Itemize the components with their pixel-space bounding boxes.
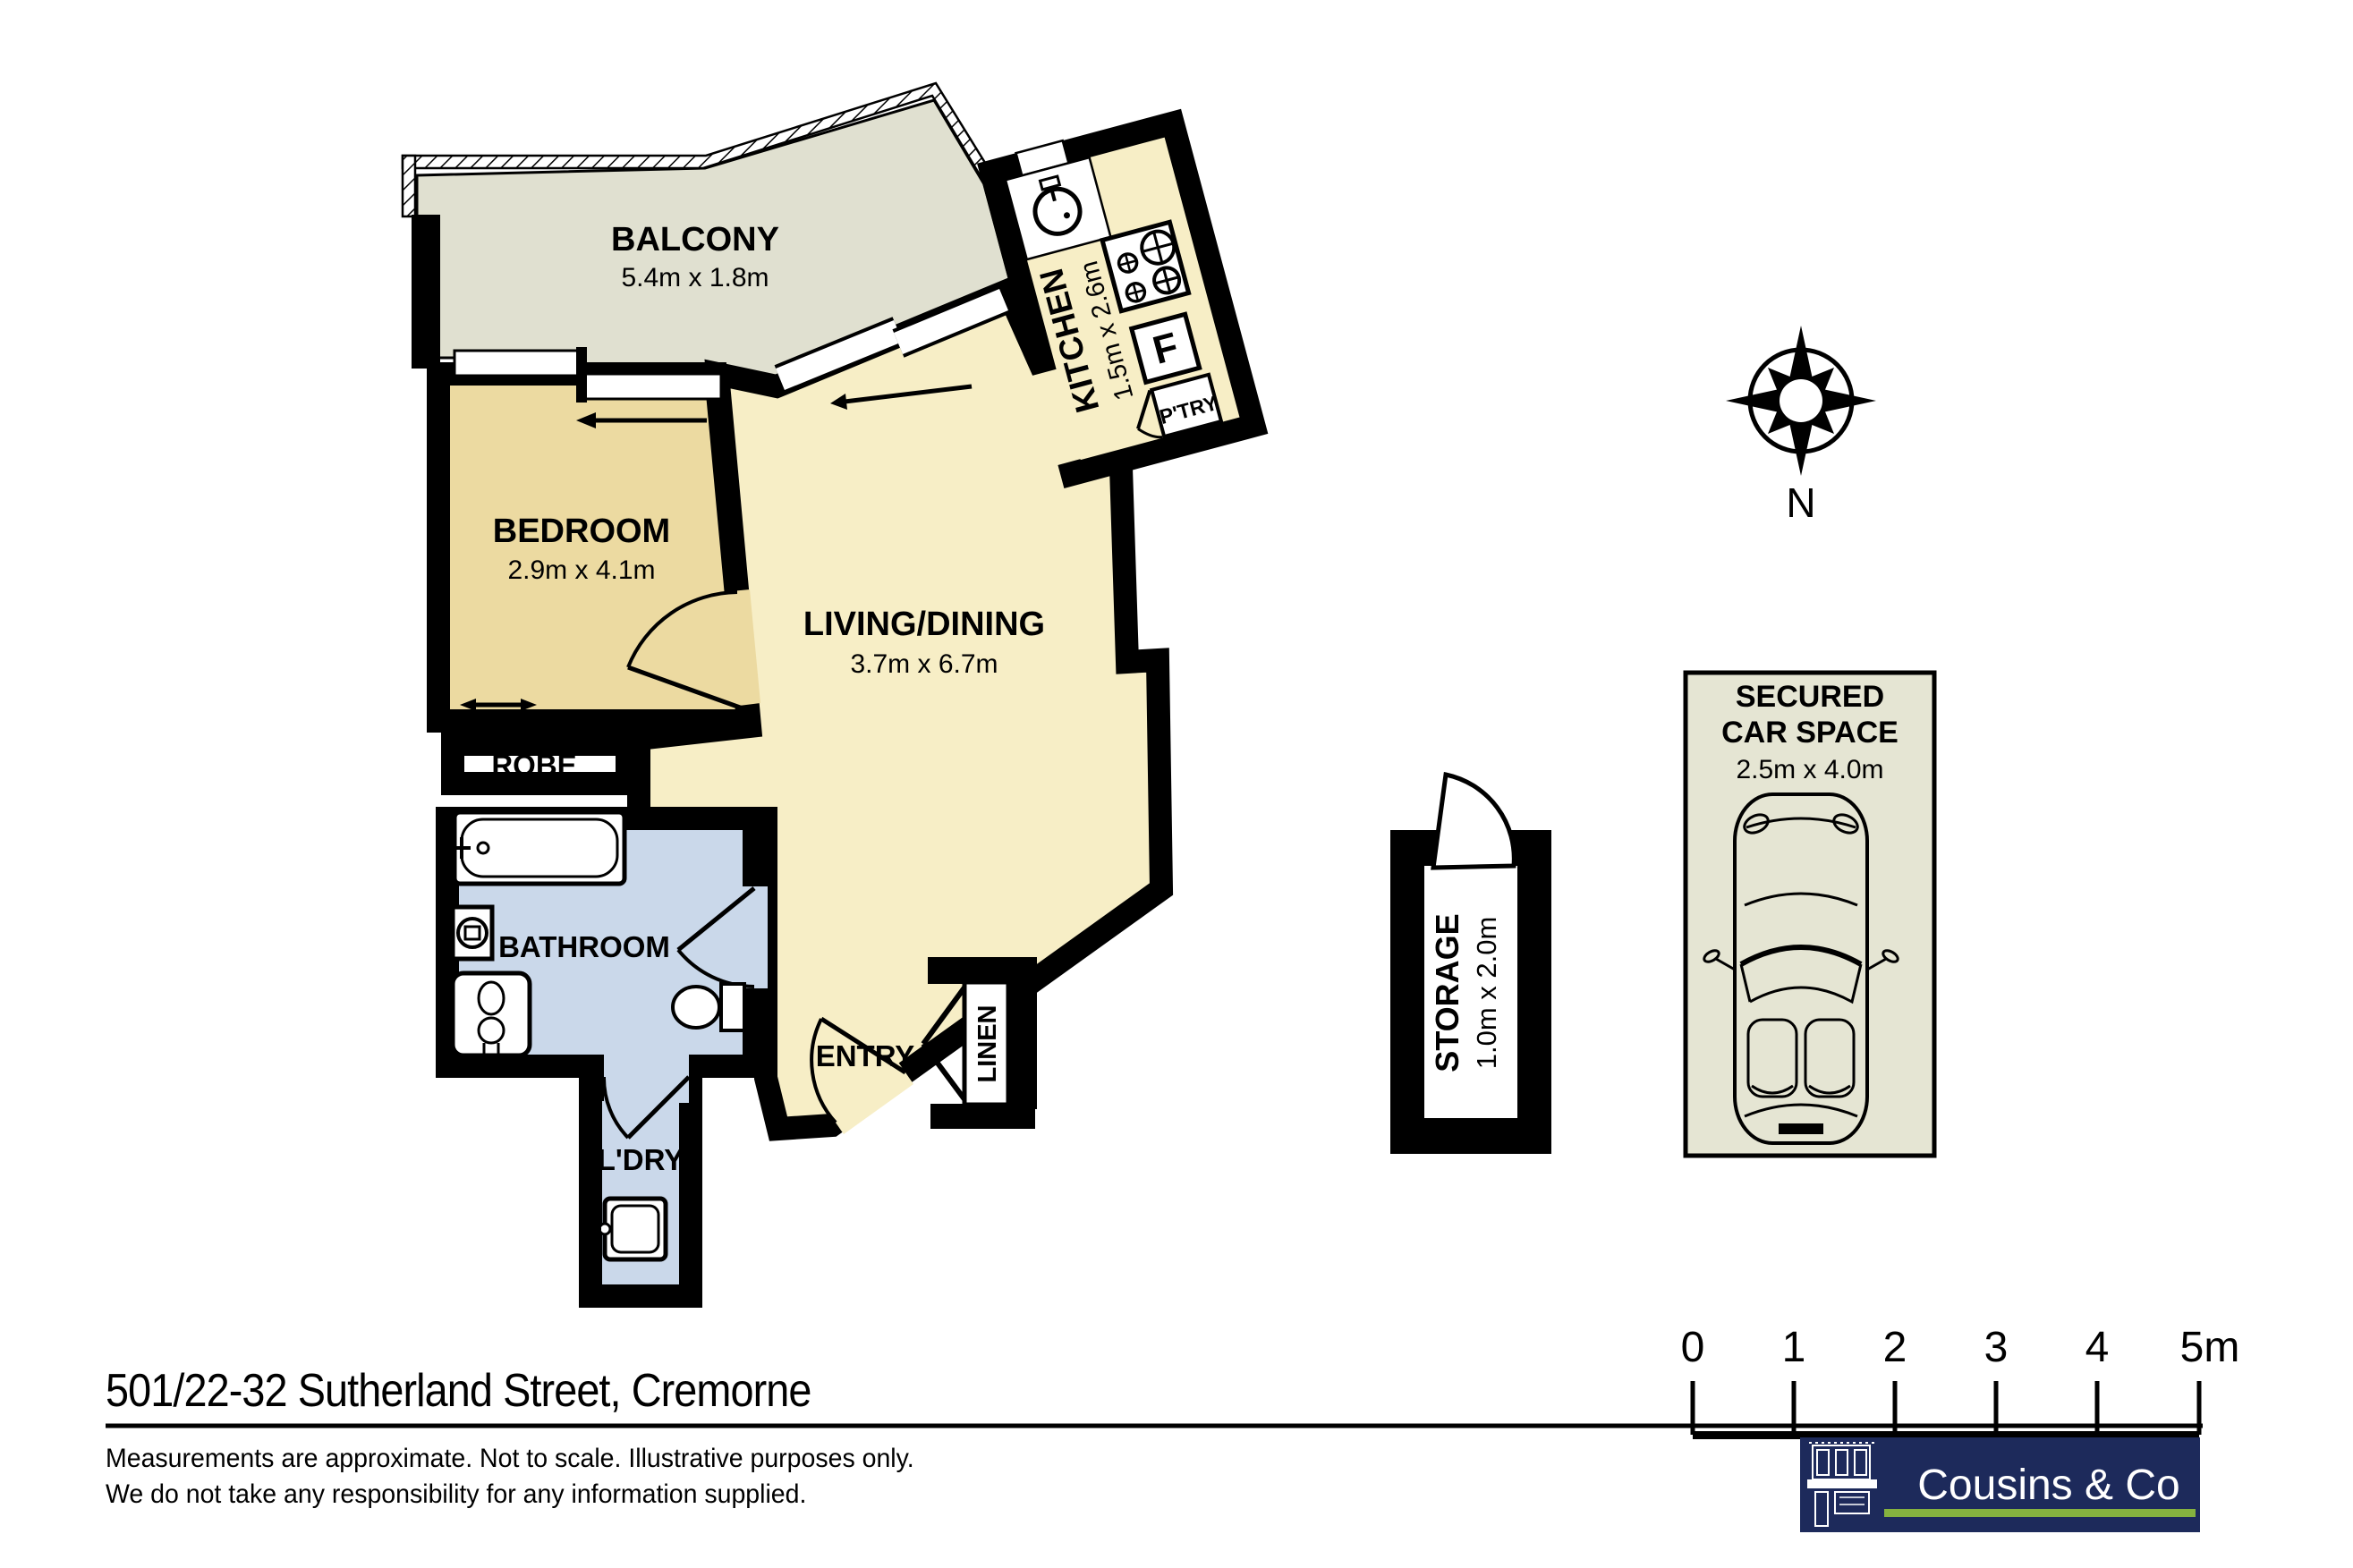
storage-unit: STORAGE 1.0m x 2.0m bbox=[1390, 775, 1551, 1154]
pedestal-basin bbox=[453, 973, 530, 1055]
brand-name: Cousins & Co bbox=[1917, 1462, 2179, 1509]
disclaimer-line1: Measurements are approximate. Not to sca… bbox=[106, 1444, 914, 1473]
bathtub bbox=[454, 812, 624, 884]
storage-label: STORAGE bbox=[1429, 913, 1465, 1072]
laundry-floor bbox=[590, 1089, 691, 1296]
entry-label: ENTRY bbox=[816, 1039, 915, 1072]
linen-label: LINEN bbox=[973, 1005, 1002, 1083]
wall-segment bbox=[412, 215, 440, 369]
balcony-railing-end bbox=[403, 156, 415, 216]
bedroom-dims: 2.9m x 4.1m bbox=[507, 555, 655, 585]
brand-logo: Cousins & Co bbox=[1800, 1437, 2200, 1532]
car-space-dims: 2.5m x 4.0m bbox=[1736, 755, 1883, 784]
toilet bbox=[673, 984, 744, 1030]
scale-tick-5: 5m bbox=[2180, 1324, 2240, 1371]
living-dining-dims: 3.7m x 6.7m bbox=[850, 649, 998, 679]
disclaimer-line2: We do not take any responsibility for an… bbox=[106, 1479, 806, 1509]
bedroom-label: BEDROOM bbox=[493, 513, 670, 550]
car-space-label-line1: SECURED bbox=[1736, 680, 1884, 714]
scale-tick-2: 2 bbox=[1883, 1324, 1907, 1371]
balcony-label: BALCONY bbox=[611, 221, 779, 259]
floorplan-page: F P'TRY KITCHEN 1.5m x 2.6m bbox=[0, 0, 2353, 1568]
wall-basin bbox=[447, 907, 492, 959]
scale-tick-0: 0 bbox=[1681, 1324, 1705, 1371]
bathroom-label: BATHROOM bbox=[498, 930, 670, 963]
floor-plan-svg: F P'TRY KITCHEN 1.5m x 2.6m bbox=[0, 0, 2353, 1568]
compass-north-label: N bbox=[1786, 479, 1815, 526]
brand-underline bbox=[1884, 1509, 2196, 1517]
laundry-tub bbox=[594, 1199, 666, 1259]
car-space: SECURED CAR SPACE 2.5m x 4.0m bbox=[1686, 673, 1934, 1156]
storage-dims: 1.0m x 2.0m bbox=[1471, 917, 1502, 1070]
scale-tick-3: 3 bbox=[1984, 1324, 2009, 1371]
scale-tick-4: 4 bbox=[2085, 1324, 2110, 1371]
car-space-label-line2: CAR SPACE bbox=[1721, 716, 1899, 750]
living-dining-label: LIVING/DINING bbox=[803, 606, 1045, 643]
balcony-dims: 5.4m x 1.8m bbox=[621, 263, 769, 292]
scale-tick-1: 1 bbox=[1782, 1324, 1806, 1371]
page-title: 501/22-32 Sutherland Street, Cremorne bbox=[106, 1365, 811, 1417]
fridge: F bbox=[1132, 314, 1200, 382]
robe-label: ROBE bbox=[491, 749, 576, 782]
laundry-label: L'DRY bbox=[598, 1143, 684, 1176]
